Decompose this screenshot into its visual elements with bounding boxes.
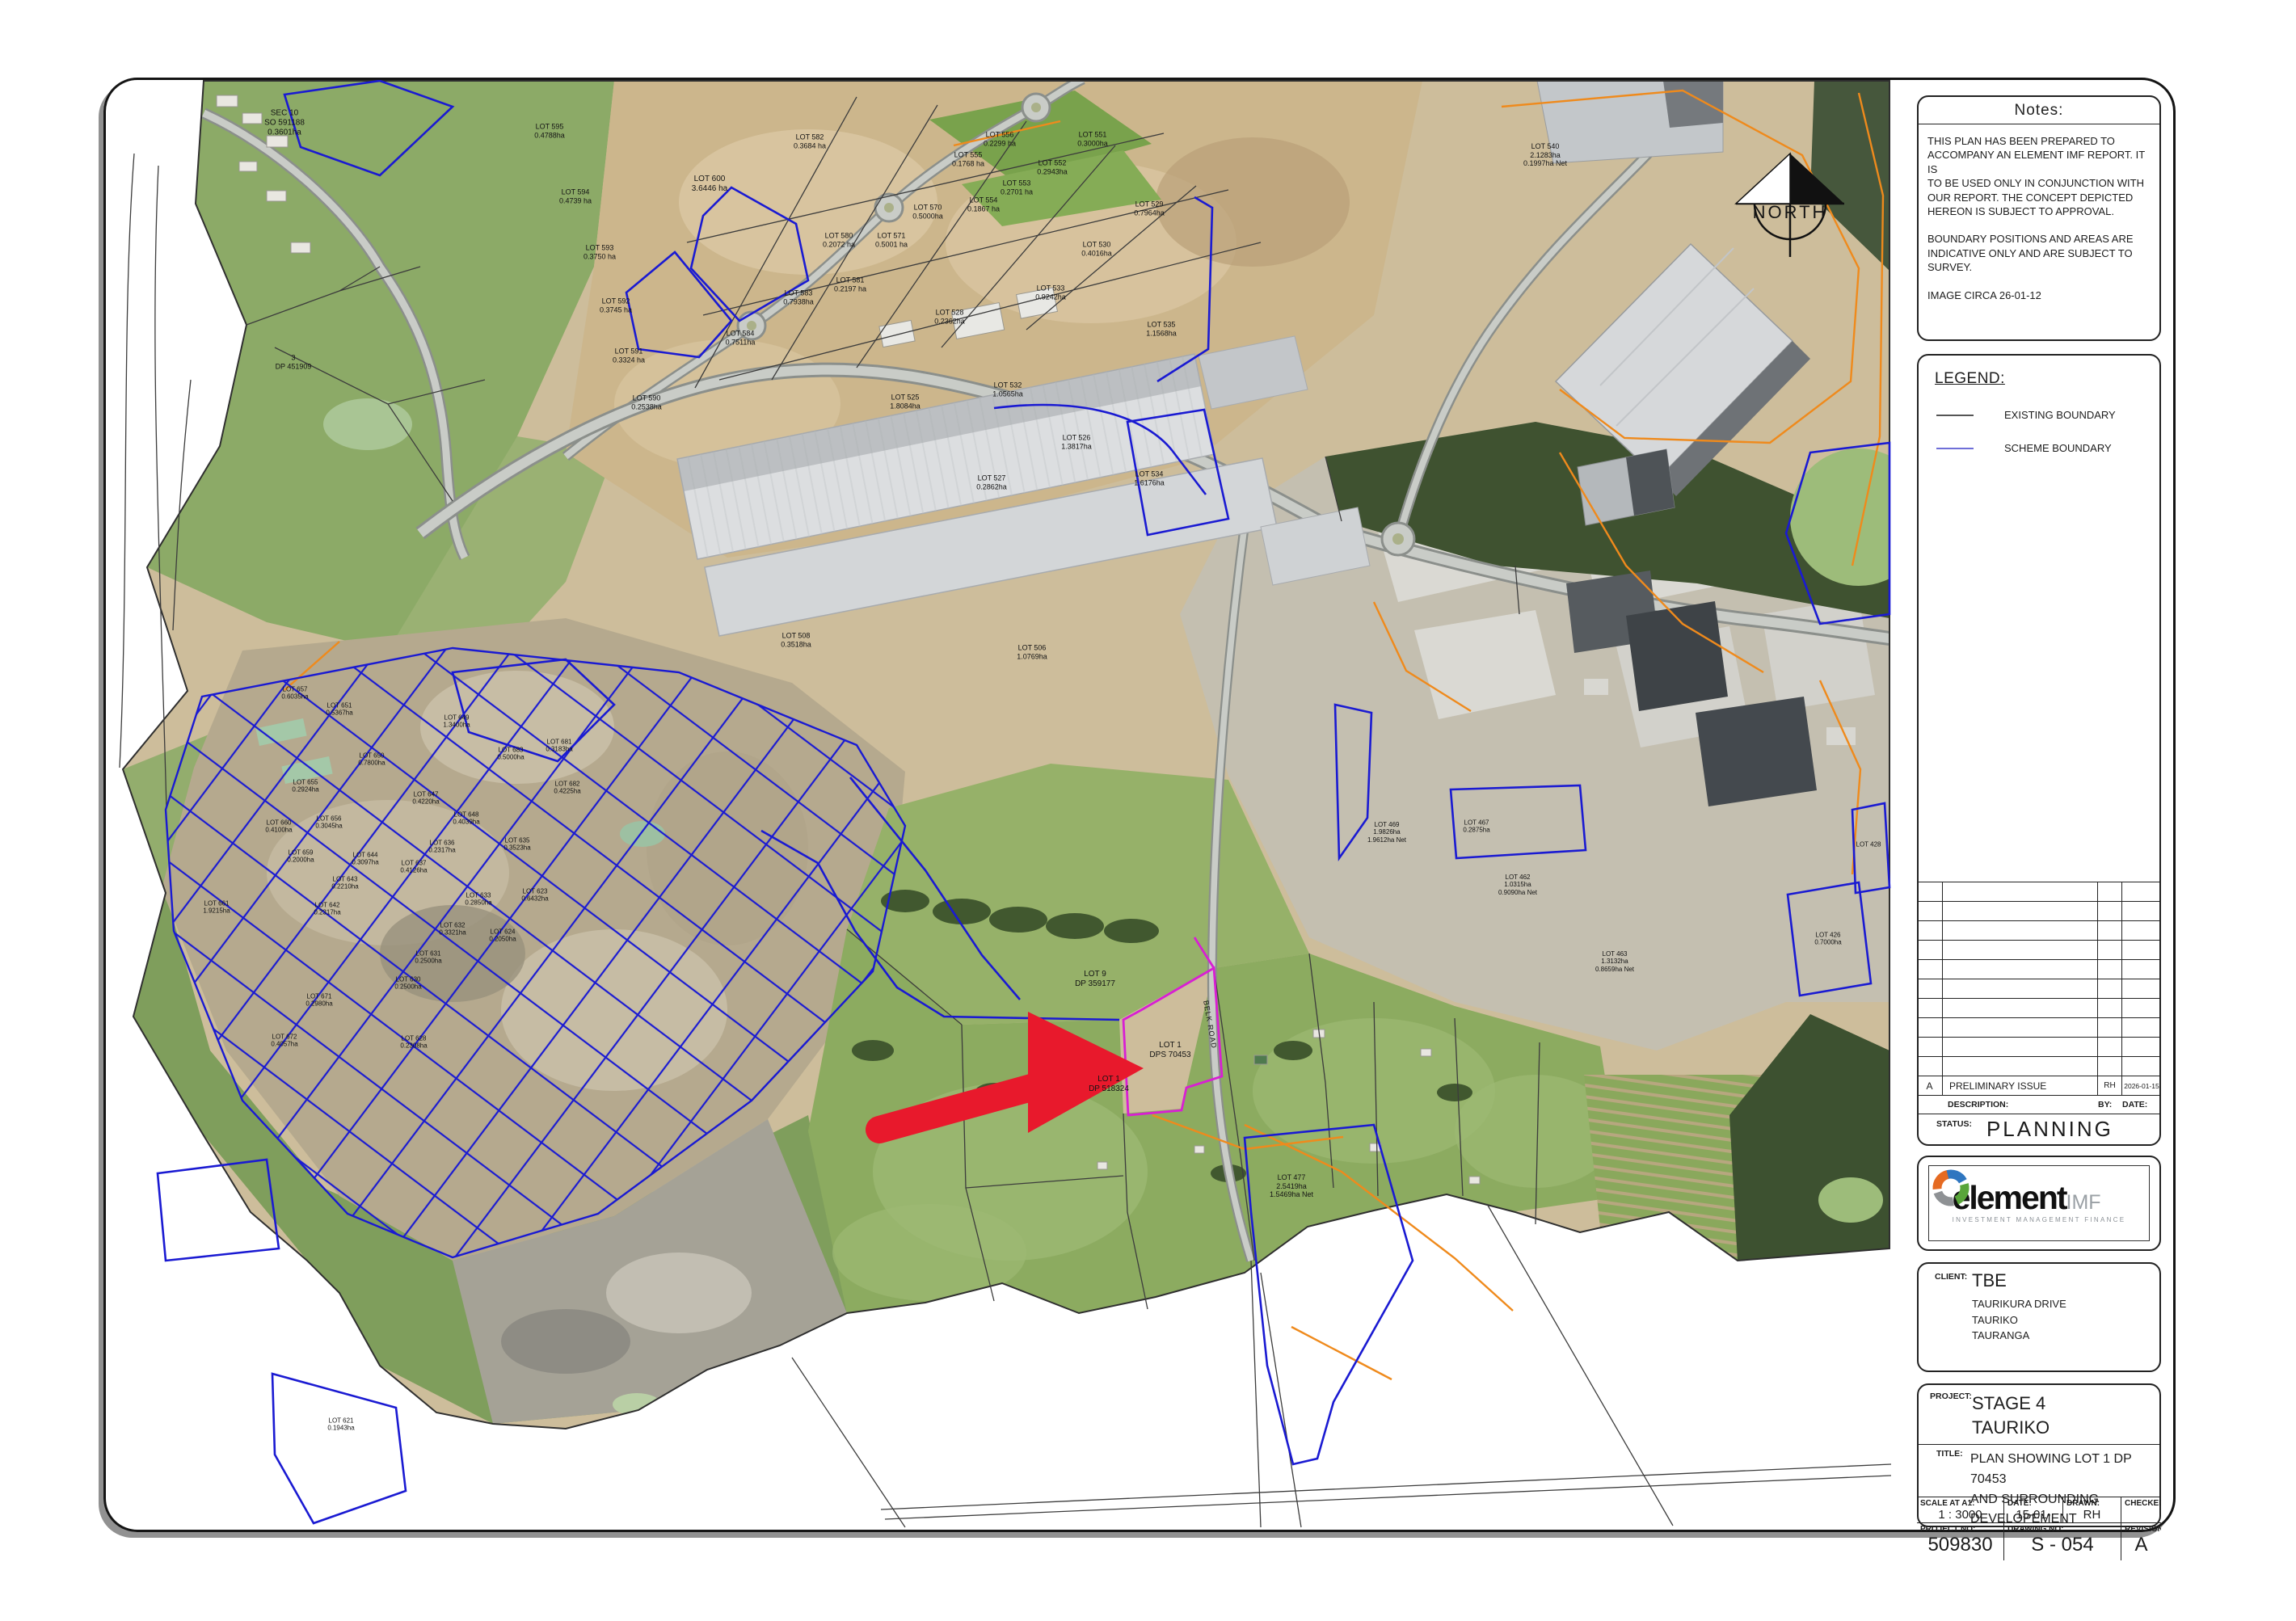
revision-row	[1917, 920, 2161, 940]
revision-cell	[1917, 1057, 1943, 1076]
project-name-line: STAGE 4	[1972, 1392, 2050, 1416]
revision-cell	[1917, 979, 1943, 998]
revision-cell	[1917, 921, 1943, 940]
revision-cell	[2098, 979, 2122, 998]
revision-cell	[1943, 1038, 2098, 1056]
legend-title: LEGEND:	[1935, 370, 2159, 388]
revision-header: DESCRIPTION: BY: DATE:	[1917, 1095, 2161, 1114]
revision-cell	[1917, 882, 1943, 901]
client-address-line: TAURIKURA DRIVE	[1972, 1296, 2066, 1312]
meta-row-scale: SCALE AT A1:1 : 3000 DATE:15-01-2026 DRA…	[1917, 1497, 2161, 1523]
revision-row	[1917, 998, 2161, 1017]
revision-table: APRELIMINARY ISSUERH2026-01-15 DESCRIPTI…	[1917, 882, 2161, 1146]
client-address: TAURIKURA DRIVETAURIKOTAURANGA	[1972, 1296, 2066, 1344]
revision-cell	[2098, 921, 2122, 940]
revision-header-date: DATE:	[2122, 1100, 2161, 1109]
revision-cell	[2098, 999, 2122, 1017]
project-no-value: 509830	[1917, 1534, 2003, 1556]
scale-label: SCALE AT A1:	[1920, 1499, 2003, 1508]
notes-title: Notes:	[1919, 97, 2159, 124]
legend-item-label: EXISTING BOUNDARY	[2004, 409, 2116, 421]
revision-cell	[2122, 1038, 2161, 1056]
legend-item: SCHEME BOUNDARY	[1936, 442, 2159, 454]
revision-cell	[1943, 941, 2098, 959]
revision-cell	[2122, 882, 2161, 901]
meta-row-numbers: PROJECT NO:509830 DRAWING NO:S - 054 REV…	[1917, 1522, 2161, 1560]
checked-label: CHECKED:	[2125, 1499, 2161, 1508]
revision-header-description: DESCRIPTION:	[1943, 1100, 2098, 1109]
revision-cell	[2122, 902, 2161, 920]
revision-cell	[1943, 999, 2098, 1017]
revision-cell	[1917, 1018, 1943, 1037]
drawn-value: RH	[2063, 1508, 2121, 1522]
plan-sheet: SEC 10SO 5911880.3601ha3DP 451909LOT 595…	[0, 0, 2296, 1621]
project-name: STAGE 4TAURIKO	[1972, 1392, 2050, 1439]
legend-item-label: SCHEME BOUNDARY	[2004, 442, 2112, 454]
revision-cell	[2122, 960, 2161, 979]
status-value: PLANNING	[1986, 1117, 2113, 1142]
revision-cell	[1943, 921, 2098, 940]
date-label: DATE:	[2007, 1499, 2062, 1508]
scale-value: 1 : 3000	[1917, 1508, 2003, 1522]
revision-cell	[2098, 882, 2122, 901]
drawing-no-label: DRAWING NO:	[2007, 1525, 2121, 1534]
drawing-title-line: PLAN SHOWING LOT 1 DP 70453	[1970, 1450, 2161, 1490]
client-address-line: TAURANGA	[1972, 1328, 2066, 1344]
legend-line-sample	[1936, 448, 1974, 449]
revision-cell	[1943, 902, 2098, 920]
title-label: TITLE:	[1936, 1449, 1963, 1459]
revision-cell: A	[1917, 1076, 1943, 1095]
revision-cell	[2122, 1018, 2161, 1037]
revision-cell	[2098, 1018, 2122, 1037]
project-name-line: TAURIKO	[1972, 1416, 2050, 1440]
drawing-title-section: TITLE: PLAN SHOWING LOT 1 DP 70453AND SU…	[1917, 1444, 2161, 1497]
revision-row	[1917, 882, 2161, 901]
revision-cell	[2098, 1038, 2122, 1056]
revision-cell	[1943, 1057, 2098, 1076]
revision-cell: PRELIMINARY ISSUE	[1943, 1076, 2098, 1095]
revision-row	[1917, 1017, 2161, 1037]
revision-row	[1917, 901, 2161, 920]
revision-cell	[2122, 979, 2161, 998]
status-label: STATUS:	[1936, 1119, 1972, 1129]
legend-items: EXISTING BOUNDARYSCHEME BOUNDARY	[1919, 409, 2159, 454]
revision-row	[1917, 1037, 2161, 1056]
notes-paragraph: BOUNDARY POSITIONS AND AREAS ARE INDICAT…	[1927, 232, 2151, 274]
revision-cell	[1943, 979, 2098, 998]
revision-value: A	[2121, 1534, 2161, 1556]
revision-cell: RH	[2098, 1076, 2122, 1095]
revision-cell	[1943, 882, 2098, 901]
company-logo: elementIMF INVESTMENT MANAGEMENT FINANCE	[1928, 1165, 2150, 1241]
legend-item: EXISTING BOUNDARY	[1936, 409, 2159, 421]
logo-box: elementIMF INVESTMENT MANAGEMENT FINANCE	[1917, 1156, 2161, 1251]
client-box: CLIENT: TBE TAURIKURA DRIVETAURIKOTAURAN…	[1917, 1262, 2161, 1372]
client-address-line: TAURIKO	[1972, 1312, 2066, 1328]
revision-cell	[1917, 941, 1943, 959]
revision-cell	[1917, 960, 1943, 979]
revision-label: REVISION:	[2125, 1525, 2161, 1534]
logo-tagline: INVESTMENT MANAGEMENT FINANCE	[1953, 1216, 2126, 1223]
legend-line-sample	[1936, 415, 1974, 416]
revision-cell	[2098, 1057, 2122, 1076]
notes-paragraph: THIS PLAN HAS BEEN PREPARED TO ACCOMPANY…	[1927, 134, 2151, 218]
revision-cell: 2026-01-15	[2122, 1076, 2161, 1095]
revision-cell	[1917, 999, 1943, 1017]
revision-cell	[2122, 1057, 2161, 1076]
drawing-no-value: S - 054	[2004, 1534, 2121, 1556]
revision-row	[1917, 1056, 2161, 1076]
revision-row: APRELIMINARY ISSUERH2026-01-15	[1917, 1076, 2161, 1095]
client-name: TBE	[1972, 1270, 2007, 1291]
revision-rows: APRELIMINARY ISSUERH2026-01-15	[1917, 882, 2161, 1095]
revision-header-by: BY:	[2098, 1100, 2122, 1109]
notes-body: THIS PLAN HAS BEEN PREPARED TO ACCOMPANY…	[1919, 124, 2159, 326]
revision-row	[1917, 940, 2161, 959]
status-row: STATUS: PLANNING	[1917, 1114, 2161, 1146]
revision-row	[1917, 979, 2161, 998]
notes-paragraph: IMAGE CIRCA 26-01-12	[1927, 288, 2151, 302]
project-no-label: PROJECT NO:	[1920, 1525, 2003, 1534]
project-label: PROJECT:	[1930, 1392, 1972, 1401]
title-block: PROJECT: STAGE 4TAURIKO TITLE: PLAN SHOW…	[1917, 1383, 2161, 1527]
revision-cell	[1917, 1038, 1943, 1056]
revision-cell	[1943, 960, 2098, 979]
legend-box: LEGEND: EXISTING BOUNDARYSCHEME BOUNDARY…	[1917, 354, 2161, 1146]
revision-row	[1917, 959, 2161, 979]
drawn-label: DRAWN:	[2066, 1499, 2121, 1508]
revision-cell	[2122, 941, 2161, 959]
element-imf-logo-icon	[1929, 1166, 1973, 1210]
revision-cell	[2098, 902, 2122, 920]
revision-cell	[1917, 902, 1943, 920]
logo-suffix: IMF	[2066, 1191, 2101, 1214]
notes-box: Notes: THIS PLAN HAS BEEN PREPARED TO AC…	[1917, 95, 2161, 341]
revision-cell	[1943, 1018, 2098, 1037]
client-label: CLIENT:	[1935, 1272, 1967, 1282]
revision-cell	[2122, 999, 2161, 1017]
revision-cell	[2098, 941, 2122, 959]
revision-cell	[2122, 921, 2161, 940]
date-value: 15-01-2026	[2004, 1508, 2062, 1523]
revision-cell	[2098, 960, 2122, 979]
